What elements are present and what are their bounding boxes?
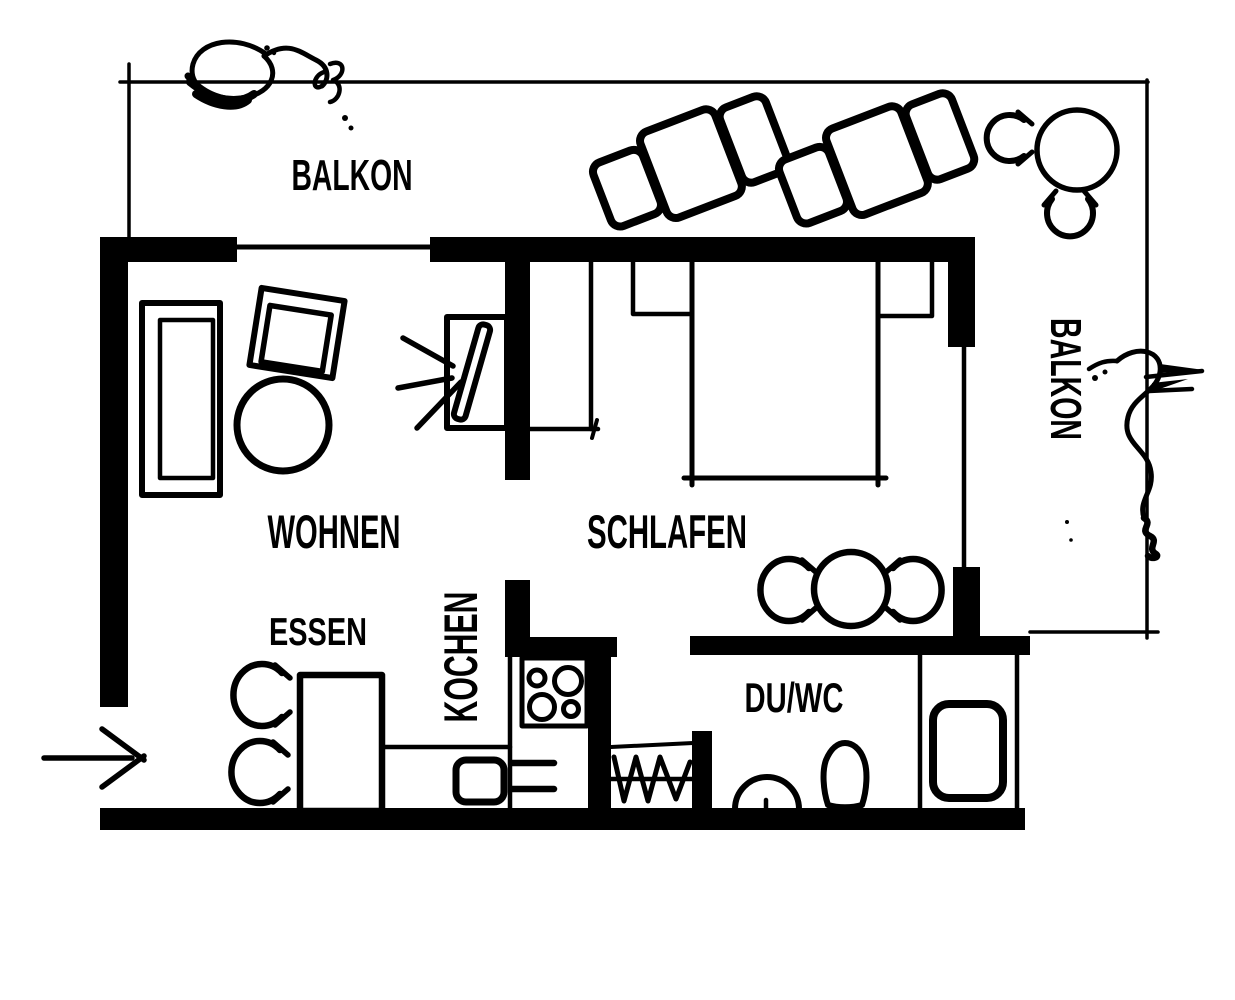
- armchair: [249, 288, 344, 378]
- wall-left: [100, 237, 128, 707]
- balcony-furniture: [586, 85, 1117, 241]
- chair-icon: [760, 559, 817, 621]
- room-label-kochen: KOCHEN: [434, 592, 487, 723]
- chair-icon: [987, 112, 1032, 164]
- sun-lounger-icon: [772, 85, 980, 238]
- wall-bottom: [100, 808, 1025, 830]
- room-label-schlafen: SCHLAFEN: [587, 505, 747, 558]
- toilet: [824, 743, 867, 807]
- wall-bedroom-east-lower: [953, 567, 980, 637]
- wall-kitchen-north: [530, 637, 617, 657]
- wall-divider-lower: [505, 580, 530, 657]
- chair-icon: [885, 559, 942, 621]
- dining-table: [300, 675, 382, 811]
- floorplan-svg: BALKON BALKON WOHNEN SCHLAFEN ESSEN KOCH…: [0, 0, 1235, 1000]
- room-label-wohnen: WOHNEN: [268, 505, 401, 558]
- plant-dot: [1069, 538, 1073, 542]
- armchair-inner: [261, 305, 331, 371]
- nightstand-left: [633, 262, 692, 314]
- shower-tray: [933, 704, 1003, 798]
- bedroom: [530, 262, 942, 626]
- plant-dot: [1103, 370, 1108, 375]
- plant-dot: [272, 51, 276, 55]
- plant-dot: [349, 126, 354, 131]
- wall-top-right: [430, 237, 975, 262]
- closet-front-line: [611, 743, 693, 747]
- nightstand-right: [878, 262, 932, 316]
- wall-bedroom-east-upper: [948, 262, 975, 347]
- floor-plan: BALKON BALKON WOHNEN SCHLAFEN ESSEN KOCH…: [0, 0, 1235, 1000]
- room-label-essen: ESSEN: [269, 611, 367, 654]
- plant-dot: [342, 115, 348, 121]
- wall-closet-east: [692, 731, 712, 810]
- dining-area: [231, 664, 382, 811]
- sitting-table: [814, 552, 888, 626]
- plant-dot: [264, 45, 270, 51]
- plant-dot: [1065, 520, 1069, 524]
- plant-scribble-top: [188, 42, 354, 131]
- living-room: [142, 288, 507, 495]
- balcony-table: [1037, 110, 1117, 190]
- sink: [456, 760, 504, 802]
- hall-closet: [611, 743, 700, 801]
- chair-icon: [1044, 191, 1096, 236]
- room-label-balkon-top: BALKON: [292, 151, 413, 200]
- entrance-arrow: [44, 729, 144, 787]
- wall-duwc-north: [690, 636, 1030, 655]
- plant-dot: [1092, 375, 1098, 381]
- sun-lounger-icon: [586, 88, 794, 241]
- chair-icon: [233, 664, 290, 726]
- wall-kitchen-east: [588, 657, 611, 810]
- chair-icon: [231, 741, 288, 803]
- plant-stem: [1089, 361, 1117, 369]
- walls: [100, 237, 1030, 830]
- coffee-table: [237, 379, 329, 471]
- room-label-balkon-right: BALKON: [1041, 318, 1090, 440]
- room-label-du-wc: DU/WC: [745, 674, 844, 721]
- sofa-inner: [160, 320, 213, 478]
